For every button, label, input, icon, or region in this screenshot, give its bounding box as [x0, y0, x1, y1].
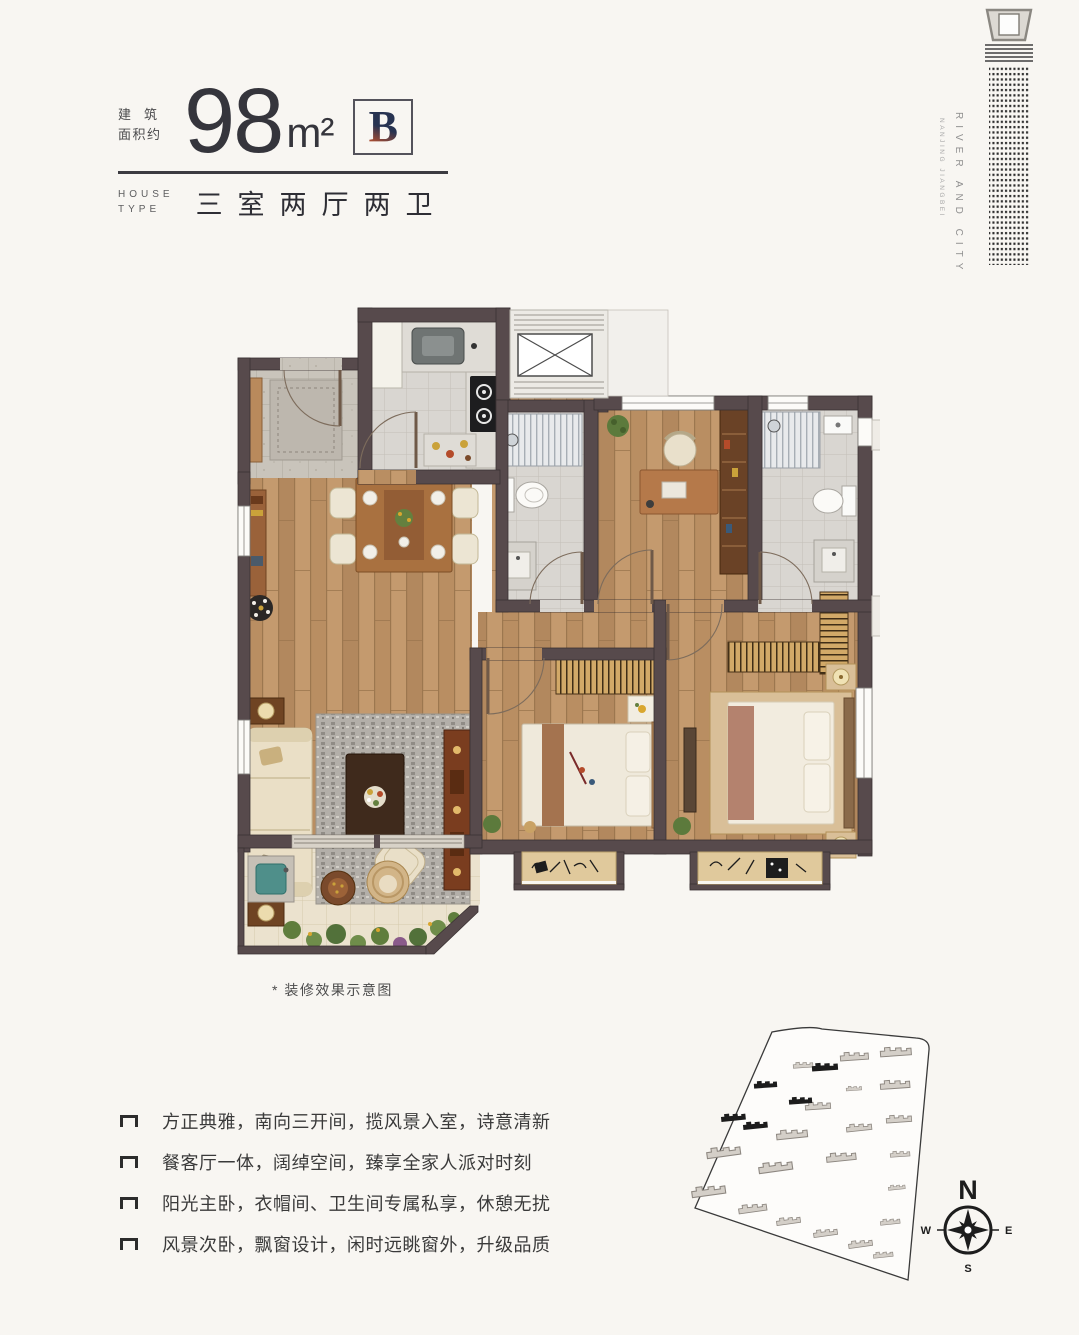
ac-ledge — [872, 420, 880, 450]
plant-icon — [607, 415, 629, 437]
feature-bullet-icon — [120, 1156, 138, 1168]
compass-icon: N E S W — [921, 1175, 1013, 1275]
desk-chair — [664, 434, 696, 466]
feature-bullet-icon — [120, 1197, 138, 1209]
lamp-icon — [258, 905, 274, 921]
feature-text: 阳光主卧，衣帽间、卫生间专属私享，休憩无扰 — [162, 1190, 551, 1216]
house-label-line1: HOUSE — [118, 188, 174, 203]
area-label-line1: 建筑 — [118, 105, 170, 125]
house-type-row: HOUSE TYPE 三室两厅两卫 — [118, 183, 538, 222]
floor-plan — [230, 300, 880, 960]
toilet — [813, 489, 843, 513]
header-divider — [118, 171, 448, 174]
house-type-label: HOUSE TYPE — [118, 188, 174, 217]
compass-south-label: S — [964, 1263, 971, 1275]
feature-item: 阳光主卧，衣帽间、卫生间专属私享，休憩无扰 — [120, 1190, 551, 1216]
feature-bullet-icon — [120, 1115, 138, 1127]
bay-window-master — [698, 852, 822, 884]
feature-list: 方正典雅，南向三开间，揽风景入室，诗意清新 餐客厅一体，阔绰空间，臻享全家人派对… — [120, 1108, 551, 1272]
plan-caption: * 装修效果示意图 — [272, 980, 393, 1000]
feature-text: 餐客厅一体，阔绰空间，臻享全家人派对时刻 — [162, 1149, 532, 1175]
shoe-bench — [250, 378, 262, 462]
area-label-line2: 面积约 — [118, 125, 170, 145]
feature-text: 方正典雅，南向三开间，揽风景入室，诗意清新 — [162, 1108, 551, 1134]
area-row: 建筑 面积约 98 m² B — [118, 84, 538, 159]
dresser — [684, 728, 696, 812]
area-label: 建筑 面积约 — [118, 105, 170, 145]
closet-wardrobe — [728, 642, 820, 672]
feature-item: 方正典雅，南向三开间，揽风景入室，诗意清新 — [120, 1108, 551, 1134]
area-unit: m² — [286, 109, 333, 157]
compass-west-label: W — [921, 1225, 932, 1237]
lamp-icon — [258, 703, 274, 719]
plant-icon — [673, 817, 691, 835]
brand-subname-vertical: NANJING JIANGBEI — [938, 118, 945, 268]
area-value: 98 — [184, 84, 282, 159]
bay-window-bedroom2 — [522, 852, 616, 884]
flyer-page: 建筑 面积约 98 m² B HOUSE TYPE 三室两厅两卫 RIVER A… — [0, 0, 1079, 1335]
feature-item: 餐客厅一体，阔绰空间，臻享全家人派对时刻 — [120, 1149, 551, 1175]
compass-east-label: E — [1005, 1225, 1012, 1237]
feature-bullet-icon — [120, 1238, 138, 1250]
plant-icon — [483, 815, 501, 833]
header: 建筑 面积约 98 m² B HOUSE TYPE 三室两厅两卫 — [118, 84, 538, 222]
brand-name-vertical: RIVER AND CITY — [953, 112, 964, 292]
balcony-sink — [256, 864, 286, 894]
sideboard — [248, 490, 266, 596]
house-type-value: 三室两厅两卫 — [196, 183, 448, 222]
entry-mat — [270, 380, 342, 460]
building-tower-icon — [983, 8, 1035, 270]
unit-type-badge: B — [353, 99, 413, 155]
ac-ledge — [872, 596, 880, 636]
wardrobe — [556, 658, 654, 694]
feature-text: 风景次卧，飘窗设计，闲时远眺窗外，升级品质 — [162, 1231, 551, 1257]
compass-north-label: N — [958, 1175, 978, 1205]
feature-item: 风景次卧，飘窗设计，闲时远眺窗外，升级品质 — [120, 1231, 551, 1257]
unit-type-letter: B — [369, 105, 398, 149]
house-label-line2: TYPE — [118, 203, 174, 218]
site-map: N E S W — [660, 1018, 1079, 1318]
